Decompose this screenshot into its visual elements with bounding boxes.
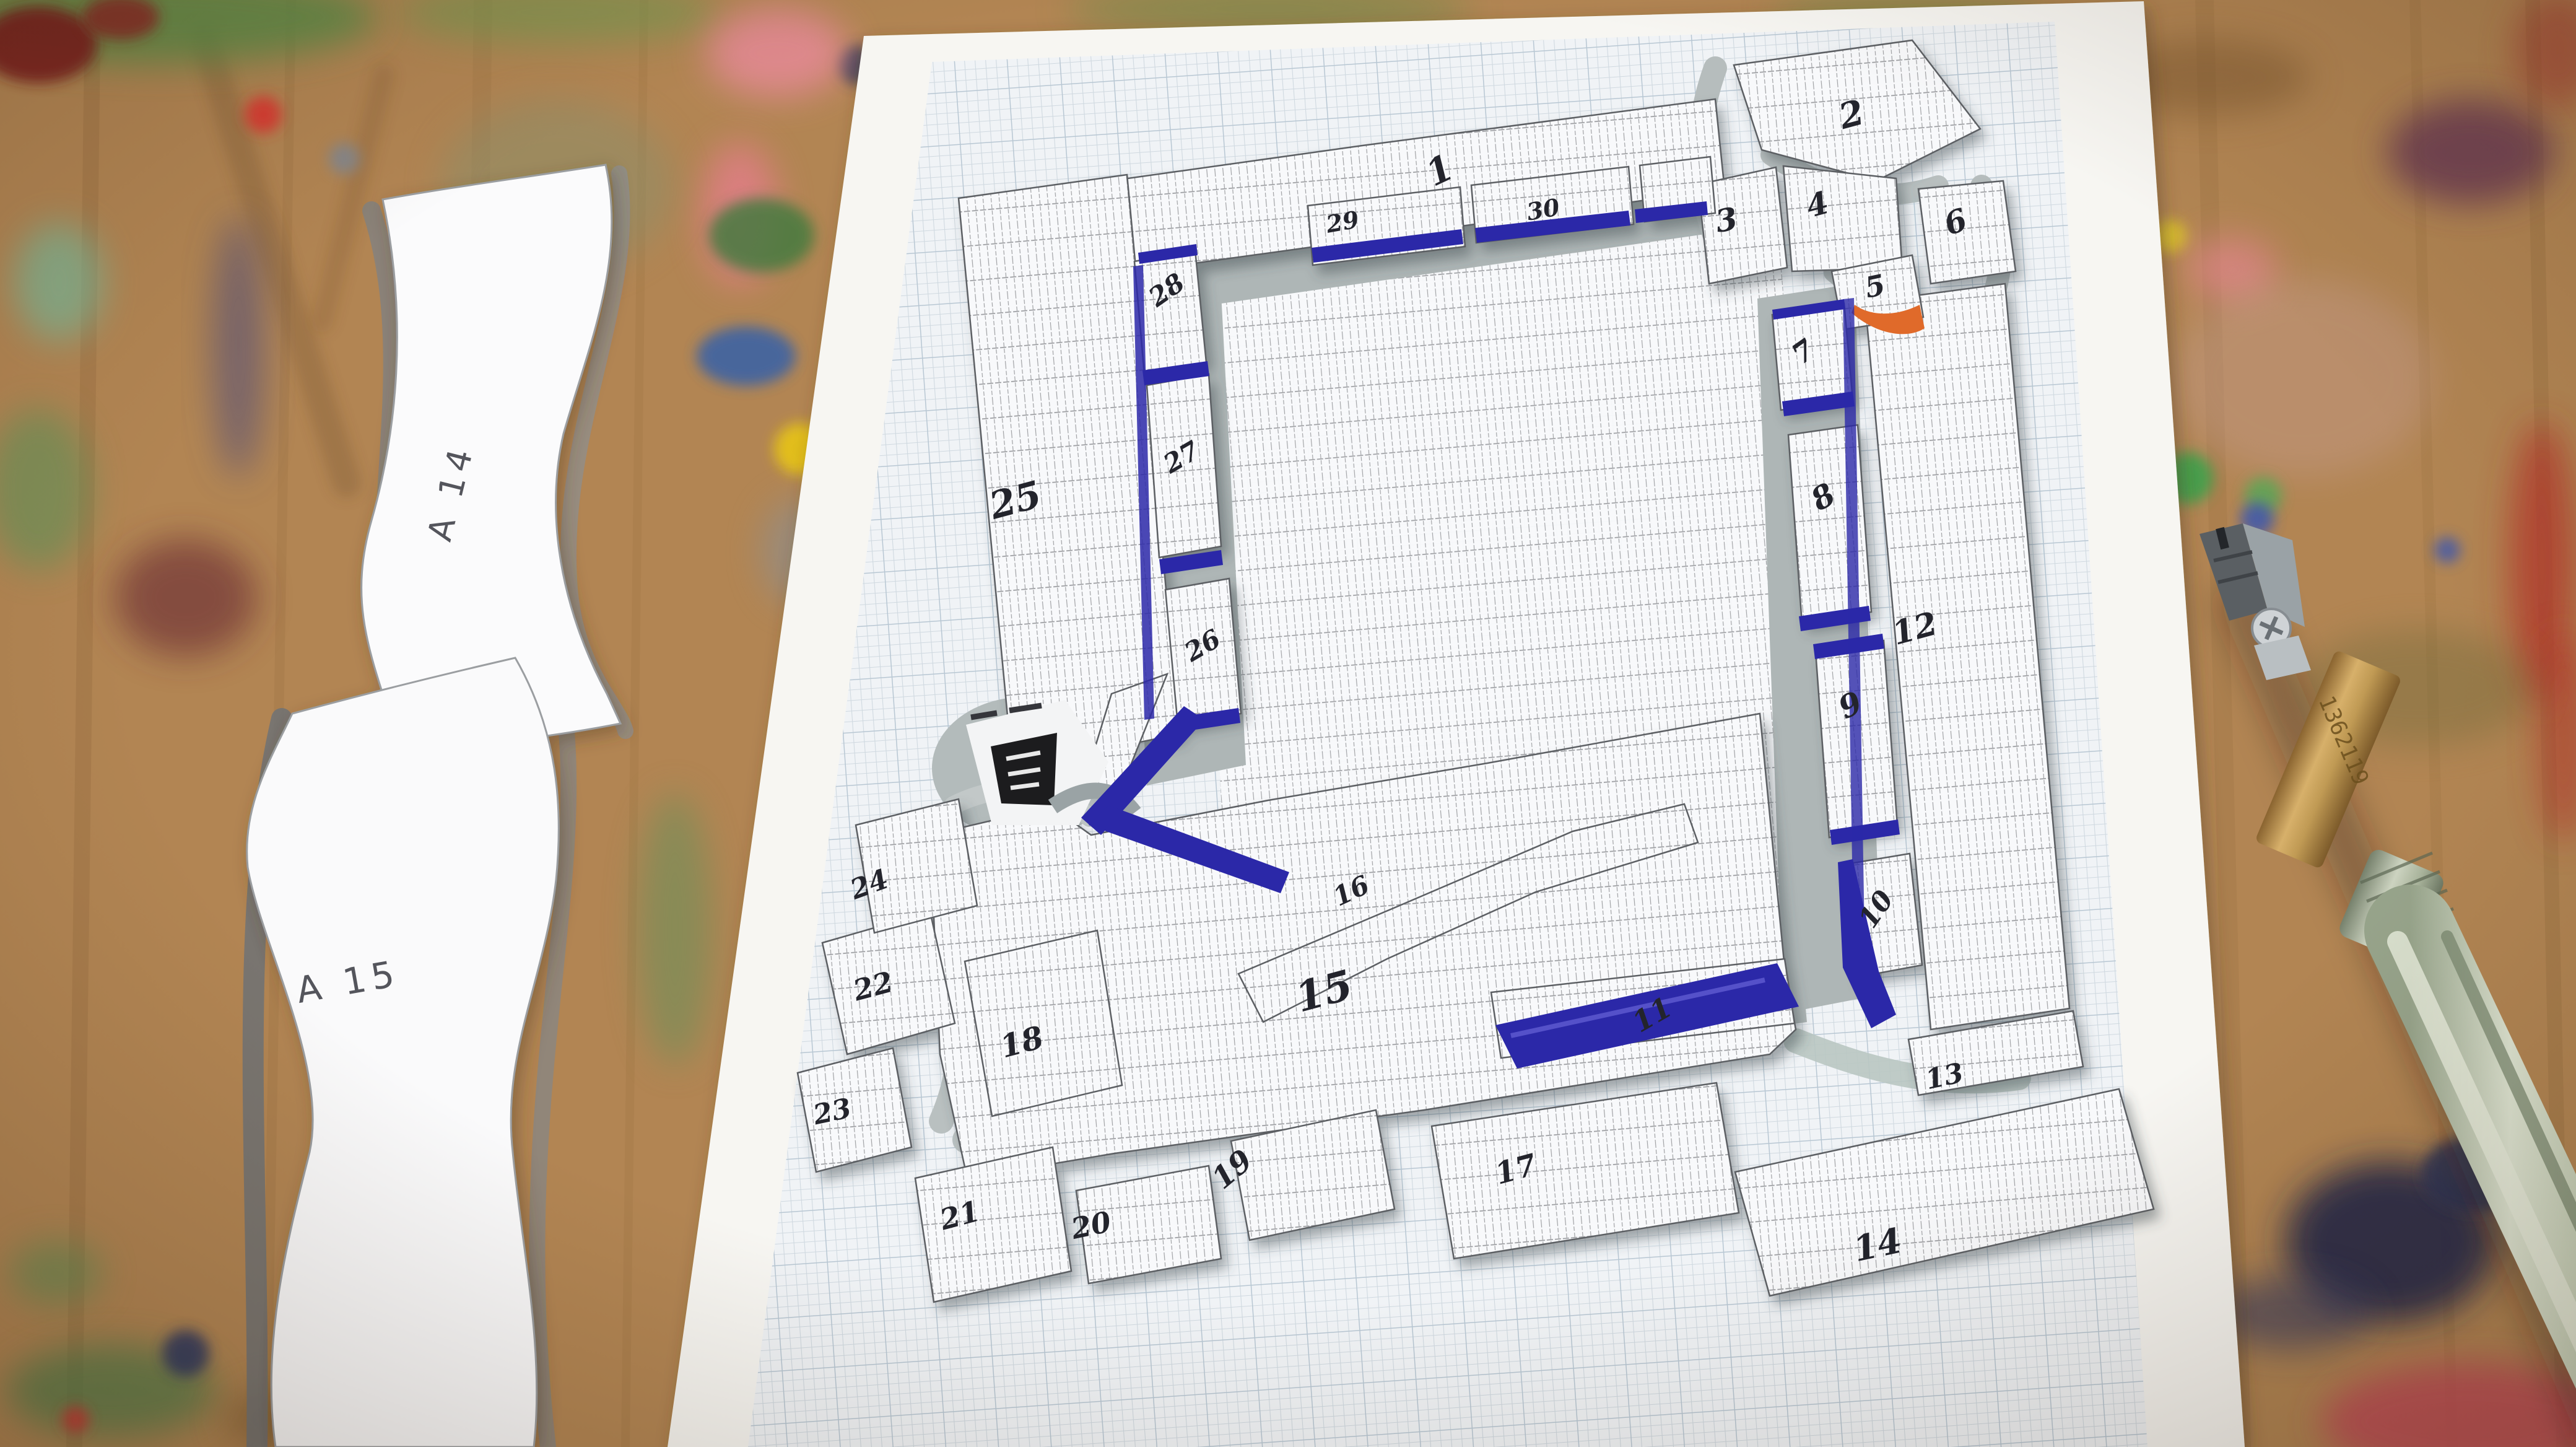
vignette bbox=[0, 0, 2576, 1447]
scene-svg: 1362119 bbox=[0, 0, 2576, 1447]
photo-canvas: 1362119 1 2 3 4 5 6 7 8 9 10 11 12 13 14… bbox=[0, 0, 2576, 1447]
